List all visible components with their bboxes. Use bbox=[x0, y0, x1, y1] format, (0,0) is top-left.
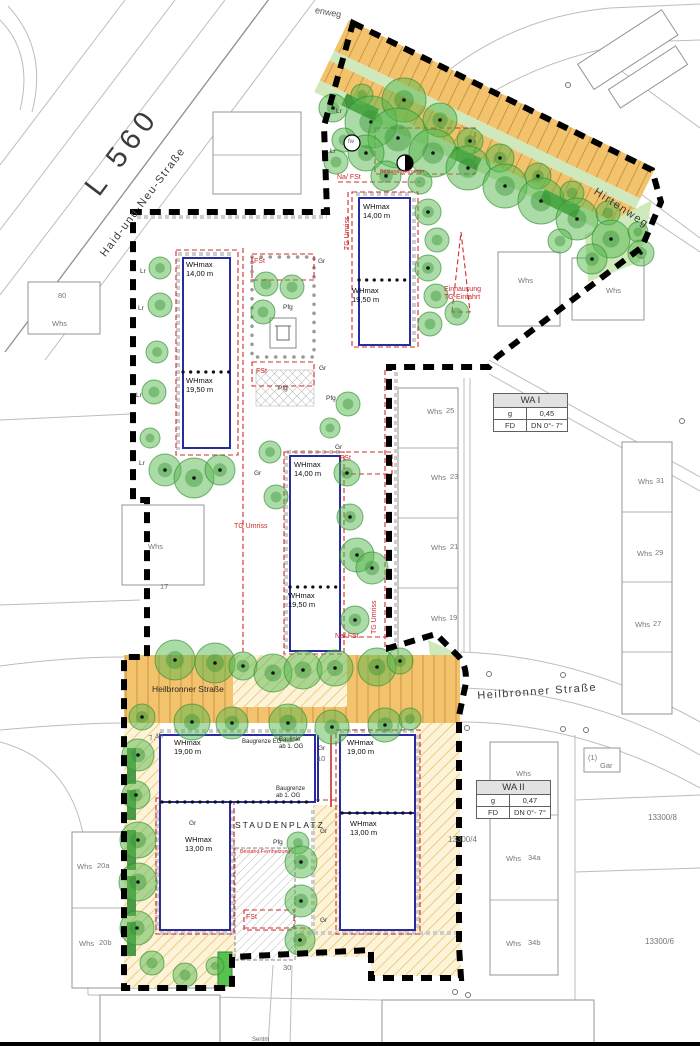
zone-title-wa2: WA II bbox=[477, 781, 551, 795]
map-label: 19 bbox=[449, 614, 457, 623]
map-label: Whs bbox=[431, 615, 446, 624]
map-label: Lr bbox=[139, 460, 145, 468]
map-label: Lr bbox=[136, 392, 142, 400]
map-label: Baulinie ab 1. OG bbox=[279, 737, 303, 751]
map-label: Baugrenze ab 1. OG bbox=[276, 786, 305, 800]
tree bbox=[254, 272, 278, 296]
zone-wa1-fd-val: DN 0°- 7° bbox=[527, 420, 568, 432]
zone-title-wa1: WA I bbox=[494, 394, 568, 408]
map-label: Lr bbox=[330, 148, 336, 156]
map-label: WHmax 19,00 m bbox=[174, 739, 201, 757]
map-label: Lr bbox=[140, 268, 146, 276]
map-label: WHmax 13,00 m bbox=[185, 836, 212, 854]
map-label: Sentm bbox=[252, 1037, 269, 1044]
map-label: Bestand Umformer bbox=[380, 169, 424, 175]
map-label: Gr bbox=[189, 820, 196, 828]
map-label: 29 bbox=[655, 549, 663, 558]
tree bbox=[284, 651, 322, 689]
map-label: Whs bbox=[606, 287, 621, 296]
map-label: Gr bbox=[318, 258, 325, 266]
map-label: 30 bbox=[283, 964, 291, 973]
map-label: WHmax 14,00 m bbox=[363, 203, 390, 221]
tree bbox=[173, 963, 197, 987]
zone-wa2-g-val: 0,47 bbox=[510, 795, 551, 807]
map-label: Lr bbox=[138, 305, 144, 313]
map-label: FSt bbox=[246, 914, 257, 922]
tree bbox=[285, 925, 315, 955]
map-label: Gr bbox=[319, 365, 326, 373]
tree bbox=[337, 504, 363, 530]
zone-wa1-g-val: 0,45 bbox=[527, 408, 568, 420]
map-label: 25 bbox=[446, 407, 454, 416]
map-label: 80 bbox=[58, 292, 66, 301]
tree bbox=[155, 640, 195, 680]
tree bbox=[148, 293, 172, 317]
map-label: Na/ FSt bbox=[337, 174, 361, 182]
zone-wa1-fd-key: FD bbox=[494, 420, 527, 432]
map-label: 17 bbox=[160, 583, 168, 592]
tree bbox=[229, 652, 257, 680]
map-label: Gr bbox=[335, 444, 342, 452]
map-label: Gar bbox=[600, 762, 613, 771]
tree bbox=[264, 485, 288, 509]
map-label: Whs bbox=[427, 408, 442, 417]
map-label: WHmax 13,00 m bbox=[350, 820, 377, 838]
map-label: Whs bbox=[506, 855, 521, 864]
zoning-table-wa1: WA I g 0,45 FD DN 0°- 7° bbox=[493, 393, 568, 432]
tree bbox=[425, 228, 449, 252]
map-label: Na/ FSt bbox=[335, 633, 359, 641]
map-label: Whs bbox=[79, 940, 94, 949]
tree bbox=[280, 275, 304, 299]
map-label: 20b bbox=[99, 939, 112, 948]
map-label: WHmax 14,00 m bbox=[186, 261, 213, 279]
map-label: FSt bbox=[254, 258, 265, 266]
map-label: Einhausung TG-Einfahrt bbox=[444, 286, 481, 303]
map-label: Pfg bbox=[273, 839, 283, 847]
map-label: Whs bbox=[638, 478, 653, 487]
tree bbox=[445, 301, 469, 325]
map-label: 34b bbox=[528, 939, 541, 948]
map-label: 31 bbox=[656, 477, 664, 486]
map-label: 27 bbox=[653, 620, 661, 629]
tree bbox=[368, 708, 402, 742]
map-label: Whs bbox=[637, 550, 652, 559]
tree bbox=[259, 441, 281, 463]
map-label: Whs bbox=[52, 320, 67, 329]
zone-wa2-fd-val: DN 0°- 7° bbox=[510, 807, 551, 819]
map-label: Whs bbox=[77, 863, 92, 872]
map-label: (1) bbox=[588, 754, 597, 763]
map-label: WHmax 19,00 m bbox=[347, 739, 374, 757]
tree bbox=[320, 418, 340, 438]
map-label: Gr bbox=[254, 470, 261, 478]
tree bbox=[140, 428, 160, 448]
tree bbox=[356, 552, 388, 584]
street-label-heilbronner-strip: Heilbronner Straße bbox=[152, 684, 224, 694]
map-label: Whs bbox=[506, 940, 521, 949]
map-label: FSt bbox=[340, 455, 351, 463]
map-label: Pfg bbox=[278, 385, 288, 393]
parcel-13300-4: 13300/4 bbox=[448, 835, 477, 844]
map-label: Lr bbox=[336, 108, 342, 116]
tree bbox=[336, 392, 360, 416]
map-label: WHmax 19,50 m bbox=[186, 377, 213, 395]
tree bbox=[418, 312, 442, 336]
tree bbox=[577, 244, 607, 274]
tree bbox=[205, 455, 235, 485]
tree bbox=[216, 707, 248, 739]
tree bbox=[315, 710, 349, 744]
tree bbox=[174, 704, 210, 740]
map-label: Pfg bbox=[283, 304, 293, 312]
tree bbox=[251, 300, 275, 324]
zone-wa2-g-key: g bbox=[477, 795, 510, 807]
staudenplatz-label: STAUDENPLATZ bbox=[235, 820, 325, 830]
tree bbox=[149, 257, 171, 279]
tree bbox=[415, 255, 441, 281]
map-label: Whs bbox=[635, 621, 650, 630]
map-label: Gr bbox=[318, 745, 325, 753]
tree bbox=[140, 951, 164, 975]
map-label: TG Umriss bbox=[344, 217, 352, 250]
tree bbox=[146, 341, 168, 363]
map-label: WHmax 19,50 m bbox=[352, 287, 379, 305]
map-label: Gr bbox=[320, 828, 327, 836]
map-label: TG Umriss bbox=[371, 601, 379, 634]
map-label: 23 bbox=[450, 473, 458, 482]
tree bbox=[341, 606, 369, 634]
map-label: 20a bbox=[97, 862, 110, 871]
tree bbox=[317, 650, 353, 686]
map-label: Pfg bbox=[326, 395, 336, 403]
tree bbox=[387, 648, 413, 674]
parcel-13300-8: 13300/8 bbox=[648, 813, 677, 822]
zone-wa1-g-key: g bbox=[494, 408, 527, 420]
tree bbox=[415, 199, 441, 225]
tree bbox=[371, 161, 401, 191]
map-label: WHmax 19,50 m bbox=[288, 592, 315, 610]
map-label: 34a bbox=[528, 854, 541, 863]
map-label: WHmax 14,00 m bbox=[294, 461, 321, 479]
map-label: Gr bbox=[320, 917, 327, 925]
map-label: Baugrenze EG bbox=[242, 739, 281, 746]
map-label: Whs bbox=[431, 474, 446, 483]
tree bbox=[285, 885, 317, 917]
tree bbox=[548, 229, 572, 253]
map-label: 21 bbox=[450, 543, 458, 552]
tree bbox=[129, 704, 155, 730]
site-plan: L 560Haid-und-Neu-StraßeHirtenwegenwegHe… bbox=[0, 0, 700, 1046]
map-label: FSt bbox=[256, 368, 267, 376]
map-label: Bestand Fernheizung bbox=[240, 849, 290, 855]
tree bbox=[399, 708, 421, 730]
map-label: Whs bbox=[148, 543, 163, 552]
parcel-13300-6: 13300/6 bbox=[645, 937, 674, 946]
map-label: Whs bbox=[516, 770, 531, 779]
map-label: 10 bbox=[317, 755, 325, 764]
map-label: Whs bbox=[431, 544, 446, 553]
map-label: TG Umriss bbox=[234, 523, 267, 531]
zoning-table-wa2: WA II g 0,47 FD DN 0°- 7° bbox=[476, 780, 551, 819]
tree bbox=[206, 957, 224, 975]
tree bbox=[334, 460, 360, 486]
tree bbox=[142, 380, 166, 404]
zone-wa2-fd-key: FD bbox=[477, 807, 510, 819]
map-label: Whs bbox=[518, 277, 533, 286]
map-label: fw bbox=[348, 139, 354, 146]
